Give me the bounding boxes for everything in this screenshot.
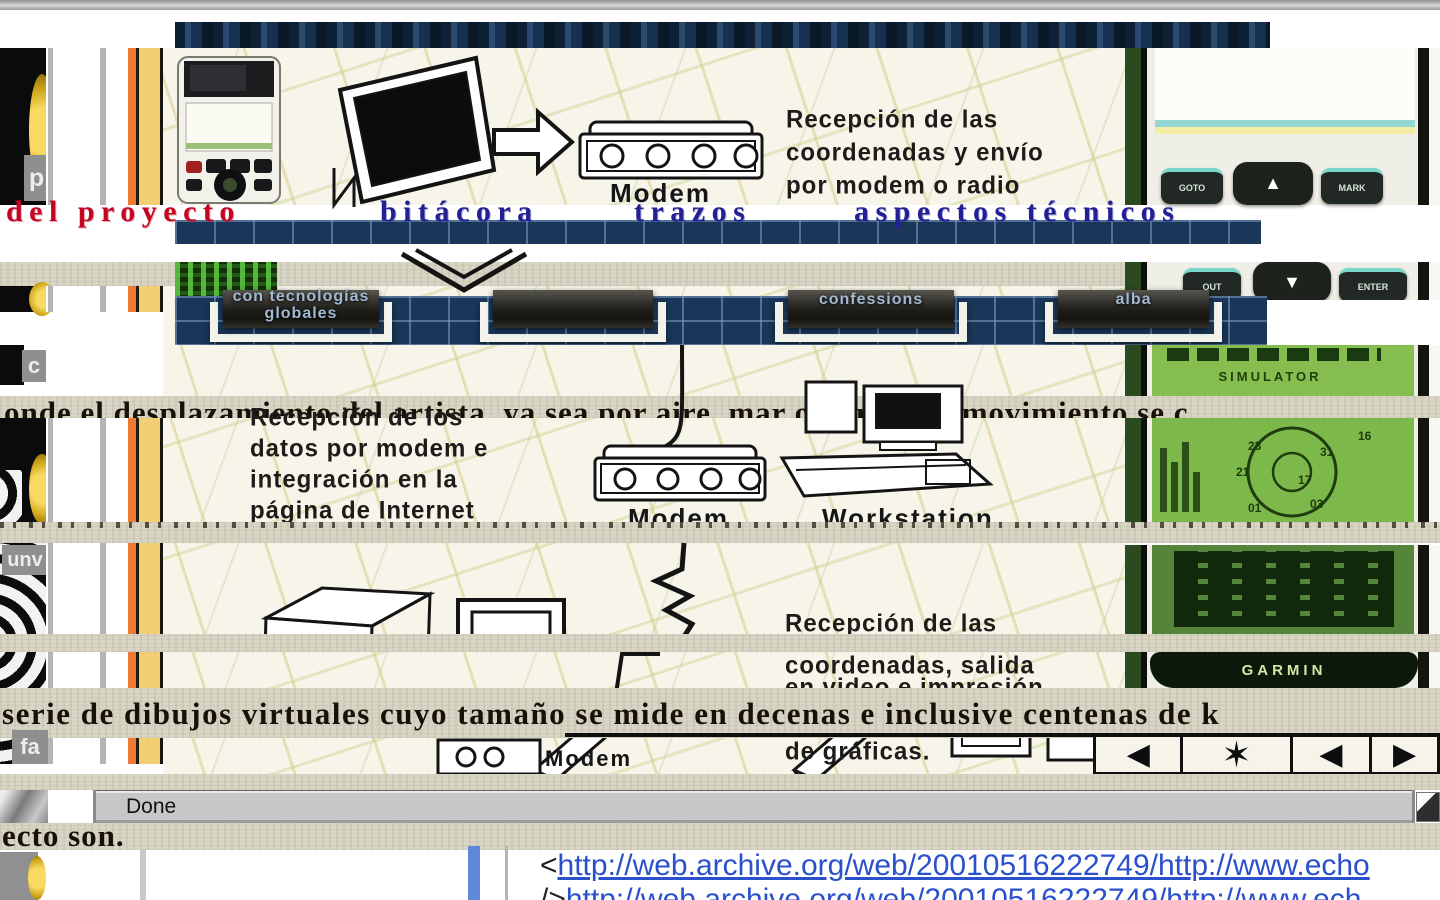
browser-viewport: Modem Recepción de las coordenadas y env… xyxy=(0,0,1440,900)
monitor-drawing xyxy=(326,50,498,207)
nav-item-trazos[interactable]: trazos xyxy=(634,197,751,227)
left-black-strip-4 xyxy=(0,418,46,522)
loading-icon xyxy=(1416,792,1440,822)
url2-prefix: /> xyxy=(540,883,566,900)
gps-key-enter: ENTER xyxy=(1339,268,1407,302)
status-text: Done xyxy=(126,796,176,817)
gps-data-blocks xyxy=(1174,551,1394,627)
rewind-icon[interactable]: ◀ xyxy=(1096,737,1183,772)
garmin-brand: GARMIN xyxy=(1242,663,1327,678)
stripe-column-2 xyxy=(128,286,163,312)
right-arrow-icon xyxy=(492,104,576,180)
gps-rocker-up: ▲ xyxy=(1233,162,1313,205)
clipped-text-remnant xyxy=(0,522,1440,528)
archive-link-2[interactable]: http://web.archive.org/web/2001051622274… xyxy=(566,883,1362,900)
gps-screen-cyan-line xyxy=(1155,120,1415,127)
archive-link-1[interactable]: http://web.archive.org/web/2001051622274… xyxy=(558,849,1370,882)
caption3-line4: de gráficas. xyxy=(785,740,930,765)
window-top-edge xyxy=(0,0,1440,10)
archive-url-line-1: <http://web.archive.org/web/200105162227… xyxy=(540,849,1370,882)
modem-drawing-2 xyxy=(591,443,769,505)
modem-drawing-1 xyxy=(576,118,766,184)
statusbar-panel: Done xyxy=(96,790,1412,823)
stripe-column-1 xyxy=(128,48,163,205)
garmin-logo-band: GARMIN xyxy=(1150,652,1418,688)
button-blank[interactable] xyxy=(480,302,666,342)
modem-label-3: Modem xyxy=(545,748,632,770)
spiral-image-patch xyxy=(0,470,22,522)
letter-fragment-fa: fa xyxy=(12,730,48,764)
quote-divider-line xyxy=(505,846,508,900)
stripe-column-4 xyxy=(128,418,163,522)
svg-text:31: 31 xyxy=(1320,445,1334,459)
star-icon[interactable]: ✶ xyxy=(1183,737,1292,772)
tape-controls: ◀ ✶ ◀ ▶ xyxy=(1093,737,1440,775)
stripe-column-5 xyxy=(128,543,163,634)
paper-band-7 xyxy=(0,823,1440,850)
archive-url-line-2: />http://web.archive.org/web/20010516222… xyxy=(540,883,1361,900)
white-glitch-cover xyxy=(1267,300,1440,347)
letter-fragment-c: c xyxy=(22,350,46,382)
gps-handheld-photo xyxy=(176,55,282,205)
url1-prefix: < xyxy=(540,849,558,882)
bottom-column-line xyxy=(140,850,146,900)
status-bar: Done xyxy=(0,790,1440,823)
gps-screen-yellow-line xyxy=(1155,127,1415,134)
blockquote-bar xyxy=(468,846,480,900)
cable-line-drawing xyxy=(652,345,697,455)
nav-item-del-proyecto[interactable]: del proyecto xyxy=(6,197,241,227)
caption3-line1: Recepción de las xyxy=(785,612,997,637)
nav-item-aspectos-tecnicos[interactable]: aspectos técnicos xyxy=(854,197,1180,227)
gps-key-mark: MARK xyxy=(1321,168,1383,204)
workstation-drawing xyxy=(776,380,1004,506)
left-black-strip-2 xyxy=(0,286,46,312)
letter-fragment-unv: unv xyxy=(2,545,48,575)
button-confessions-label: confessions xyxy=(775,291,967,308)
button-con-tecnologias-label1: con tecnologías xyxy=(210,288,392,305)
button-alba-label: alba xyxy=(1045,291,1222,308)
svg-text:03: 03 xyxy=(1310,497,1324,511)
white-gap-1 xyxy=(0,244,1440,262)
svg-text:21: 21 xyxy=(1236,465,1250,479)
gps-device-segment-3: SIMULATOR xyxy=(1125,345,1440,397)
gps-device-segment-6: GARMIN xyxy=(1125,652,1440,690)
svg-text:17: 17 xyxy=(1298,473,1312,487)
gps-device-segment-4: 23 21 17 31 03 01 16 xyxy=(1125,418,1440,528)
play-icon[interactable]: ▶ xyxy=(1372,737,1437,772)
left-black-strip-3 xyxy=(0,345,24,385)
previous-icon[interactable]: ◀ xyxy=(1293,737,1373,772)
svg-text:23: 23 xyxy=(1248,439,1262,453)
button-con-tecnologias-label2: globales xyxy=(210,305,392,322)
body-text-line-2: serie de dibujos virtuales cuyo tamaño s… xyxy=(2,698,1220,729)
gps-device-segment-1: GOTO ▲ MARK xyxy=(1125,48,1440,205)
gps-device-segment-5 xyxy=(1125,545,1440,634)
gps-satellite-skyview: 23 21 17 31 03 01 16 xyxy=(1152,418,1414,528)
paper-band-4 xyxy=(0,634,1440,652)
gps-screen-status: SIMULATOR xyxy=(1155,370,1385,383)
svg-text:01: 01 xyxy=(1248,501,1262,515)
page-banner xyxy=(175,22,1270,50)
svg-text:16: 16 xyxy=(1358,429,1372,443)
paper-band-6 xyxy=(0,774,1440,790)
lightning-cable-drawing xyxy=(648,543,700,643)
body-text-line-3: ecto son. xyxy=(2,820,125,851)
nav-item-bitacora[interactable]: bitácora xyxy=(380,197,539,227)
yellow-blob-2 xyxy=(28,856,46,900)
